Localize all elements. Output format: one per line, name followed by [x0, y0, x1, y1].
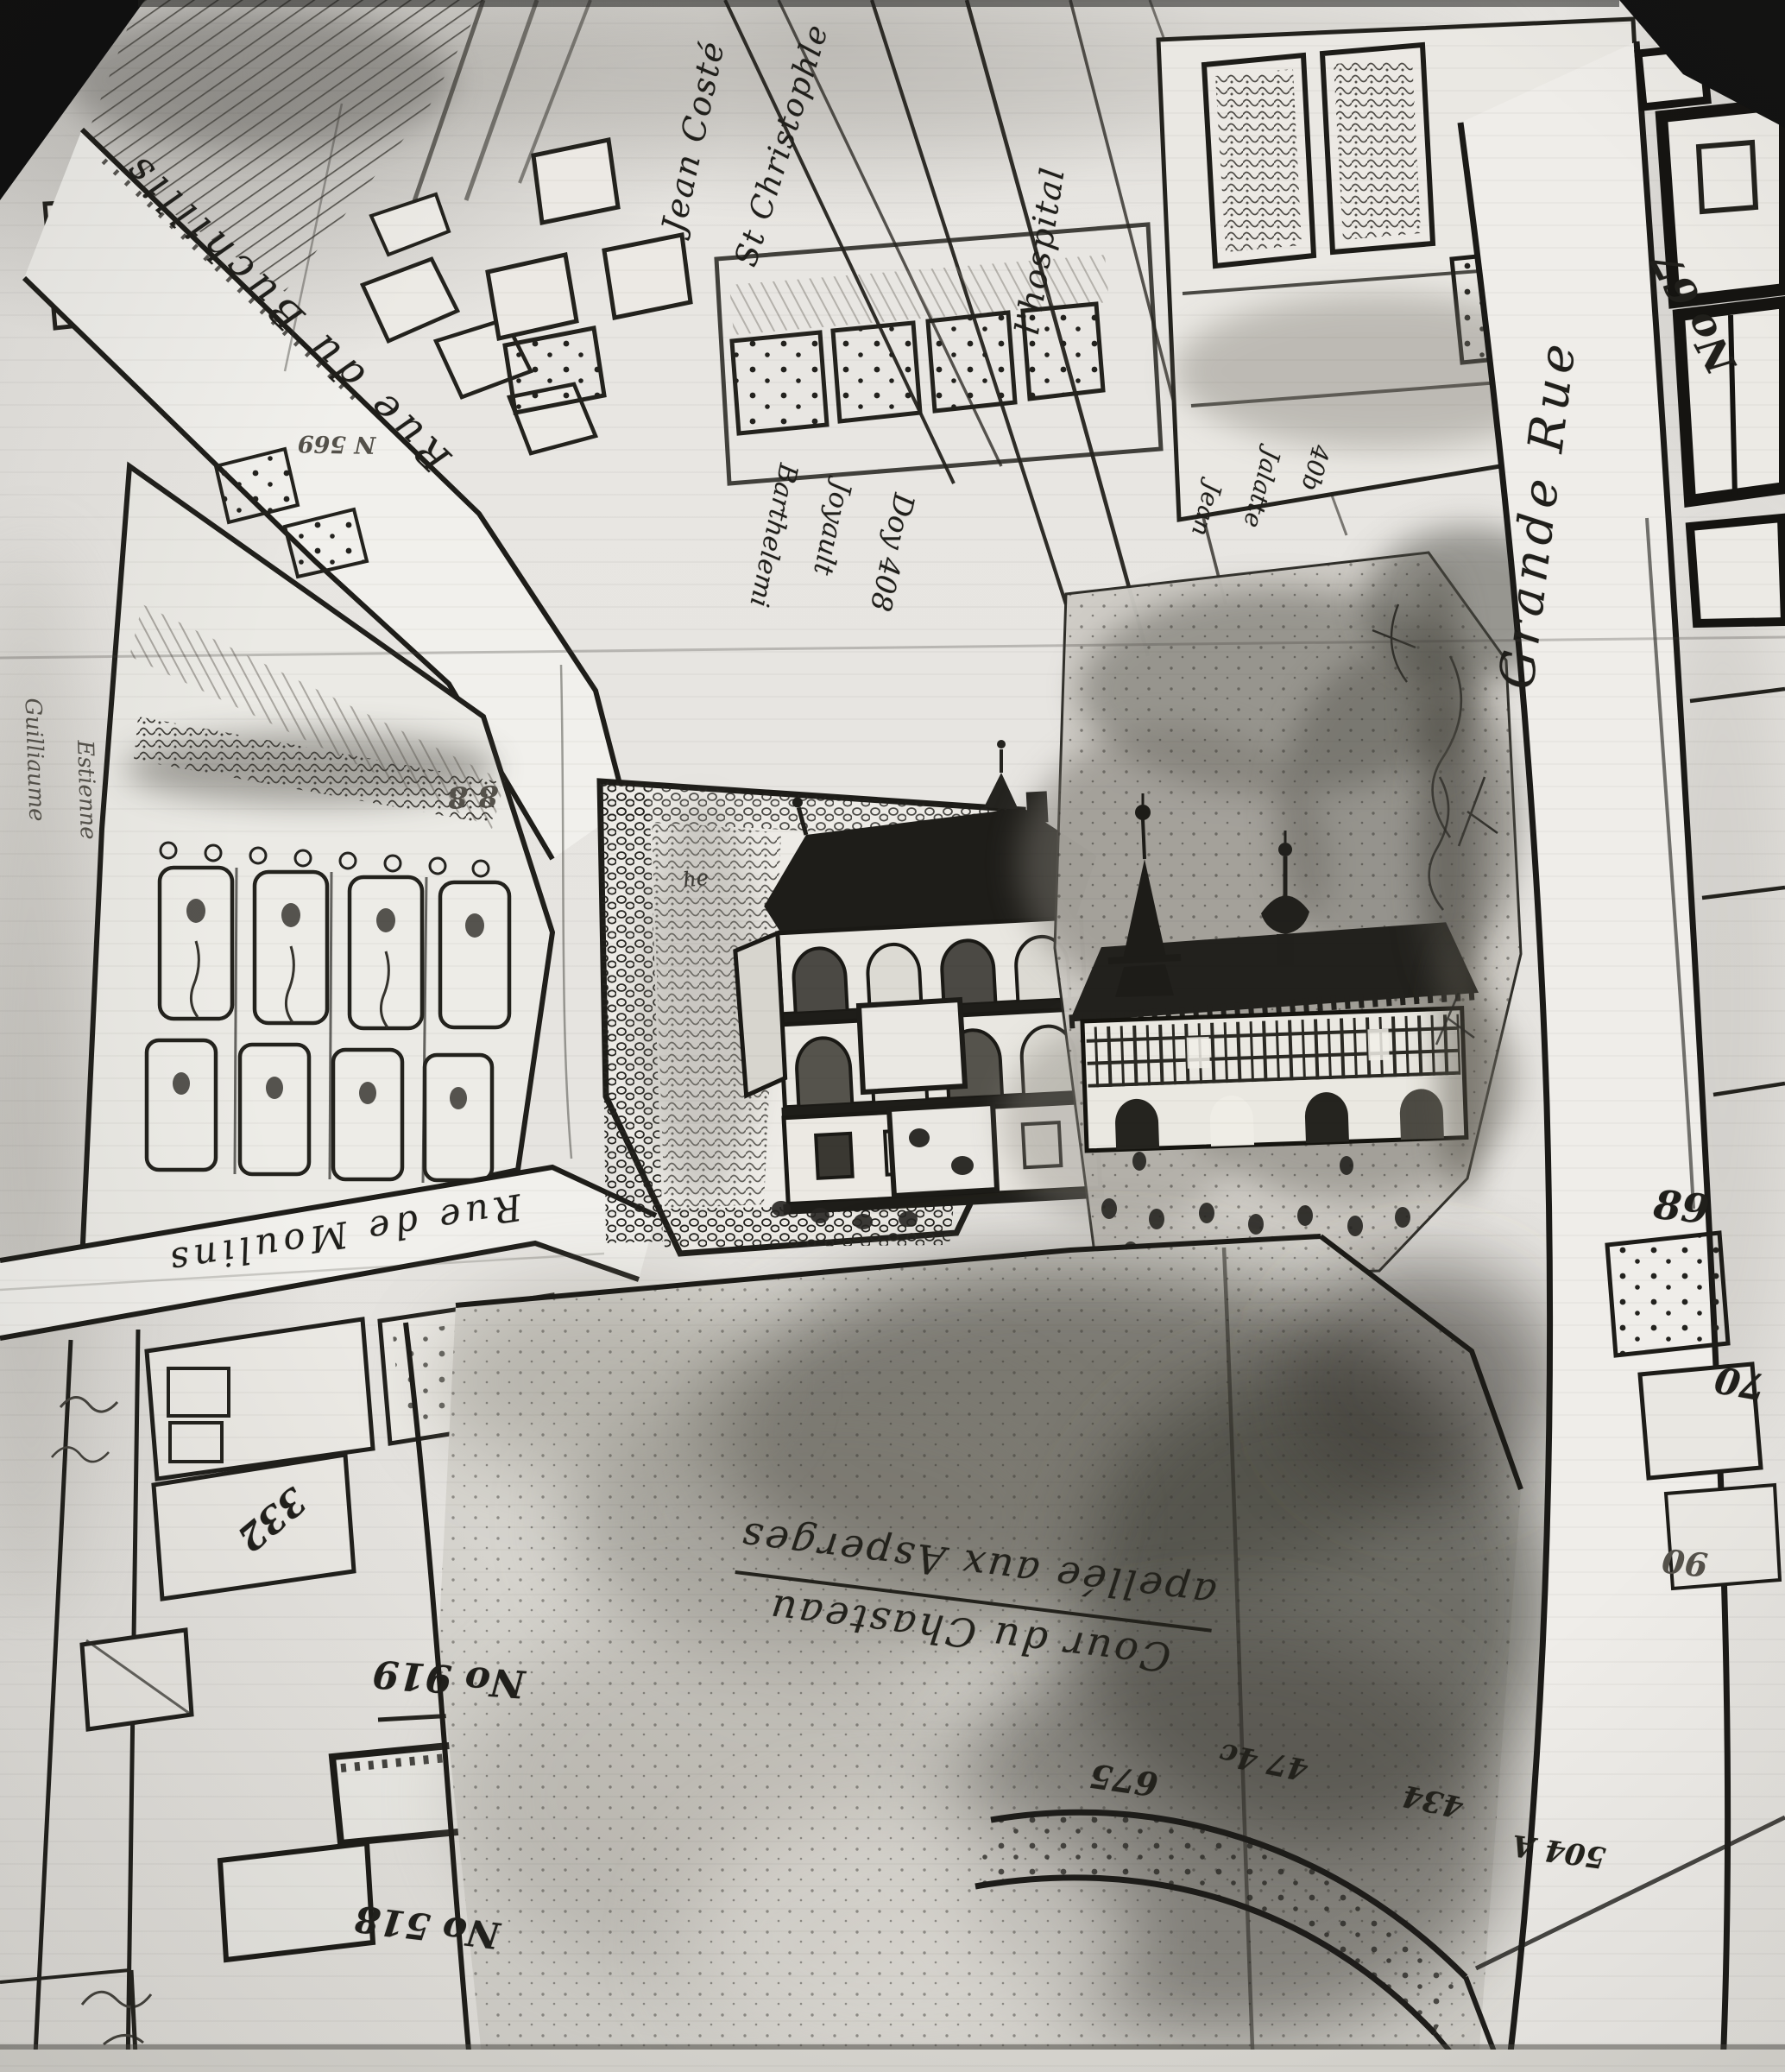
- parcel-number-89: 89: [1651, 1181, 1711, 1233]
- parcel-number-90: 90: [1660, 1541, 1709, 1584]
- parcel-number-88: 8 8: [447, 778, 500, 814]
- parcel-number-70: 70: [1712, 1358, 1769, 1408]
- name-label-estienne: Estienne: [72, 740, 101, 840]
- historic-map-photo: Rue du Buchillis Rue de Moulins Grande R…: [0, 0, 1785, 2072]
- parcel-number-569: N 569: [298, 430, 376, 458]
- note-label-he: he: [682, 866, 710, 893]
- name-label-guilliaume: Guilliaume: [20, 698, 50, 822]
